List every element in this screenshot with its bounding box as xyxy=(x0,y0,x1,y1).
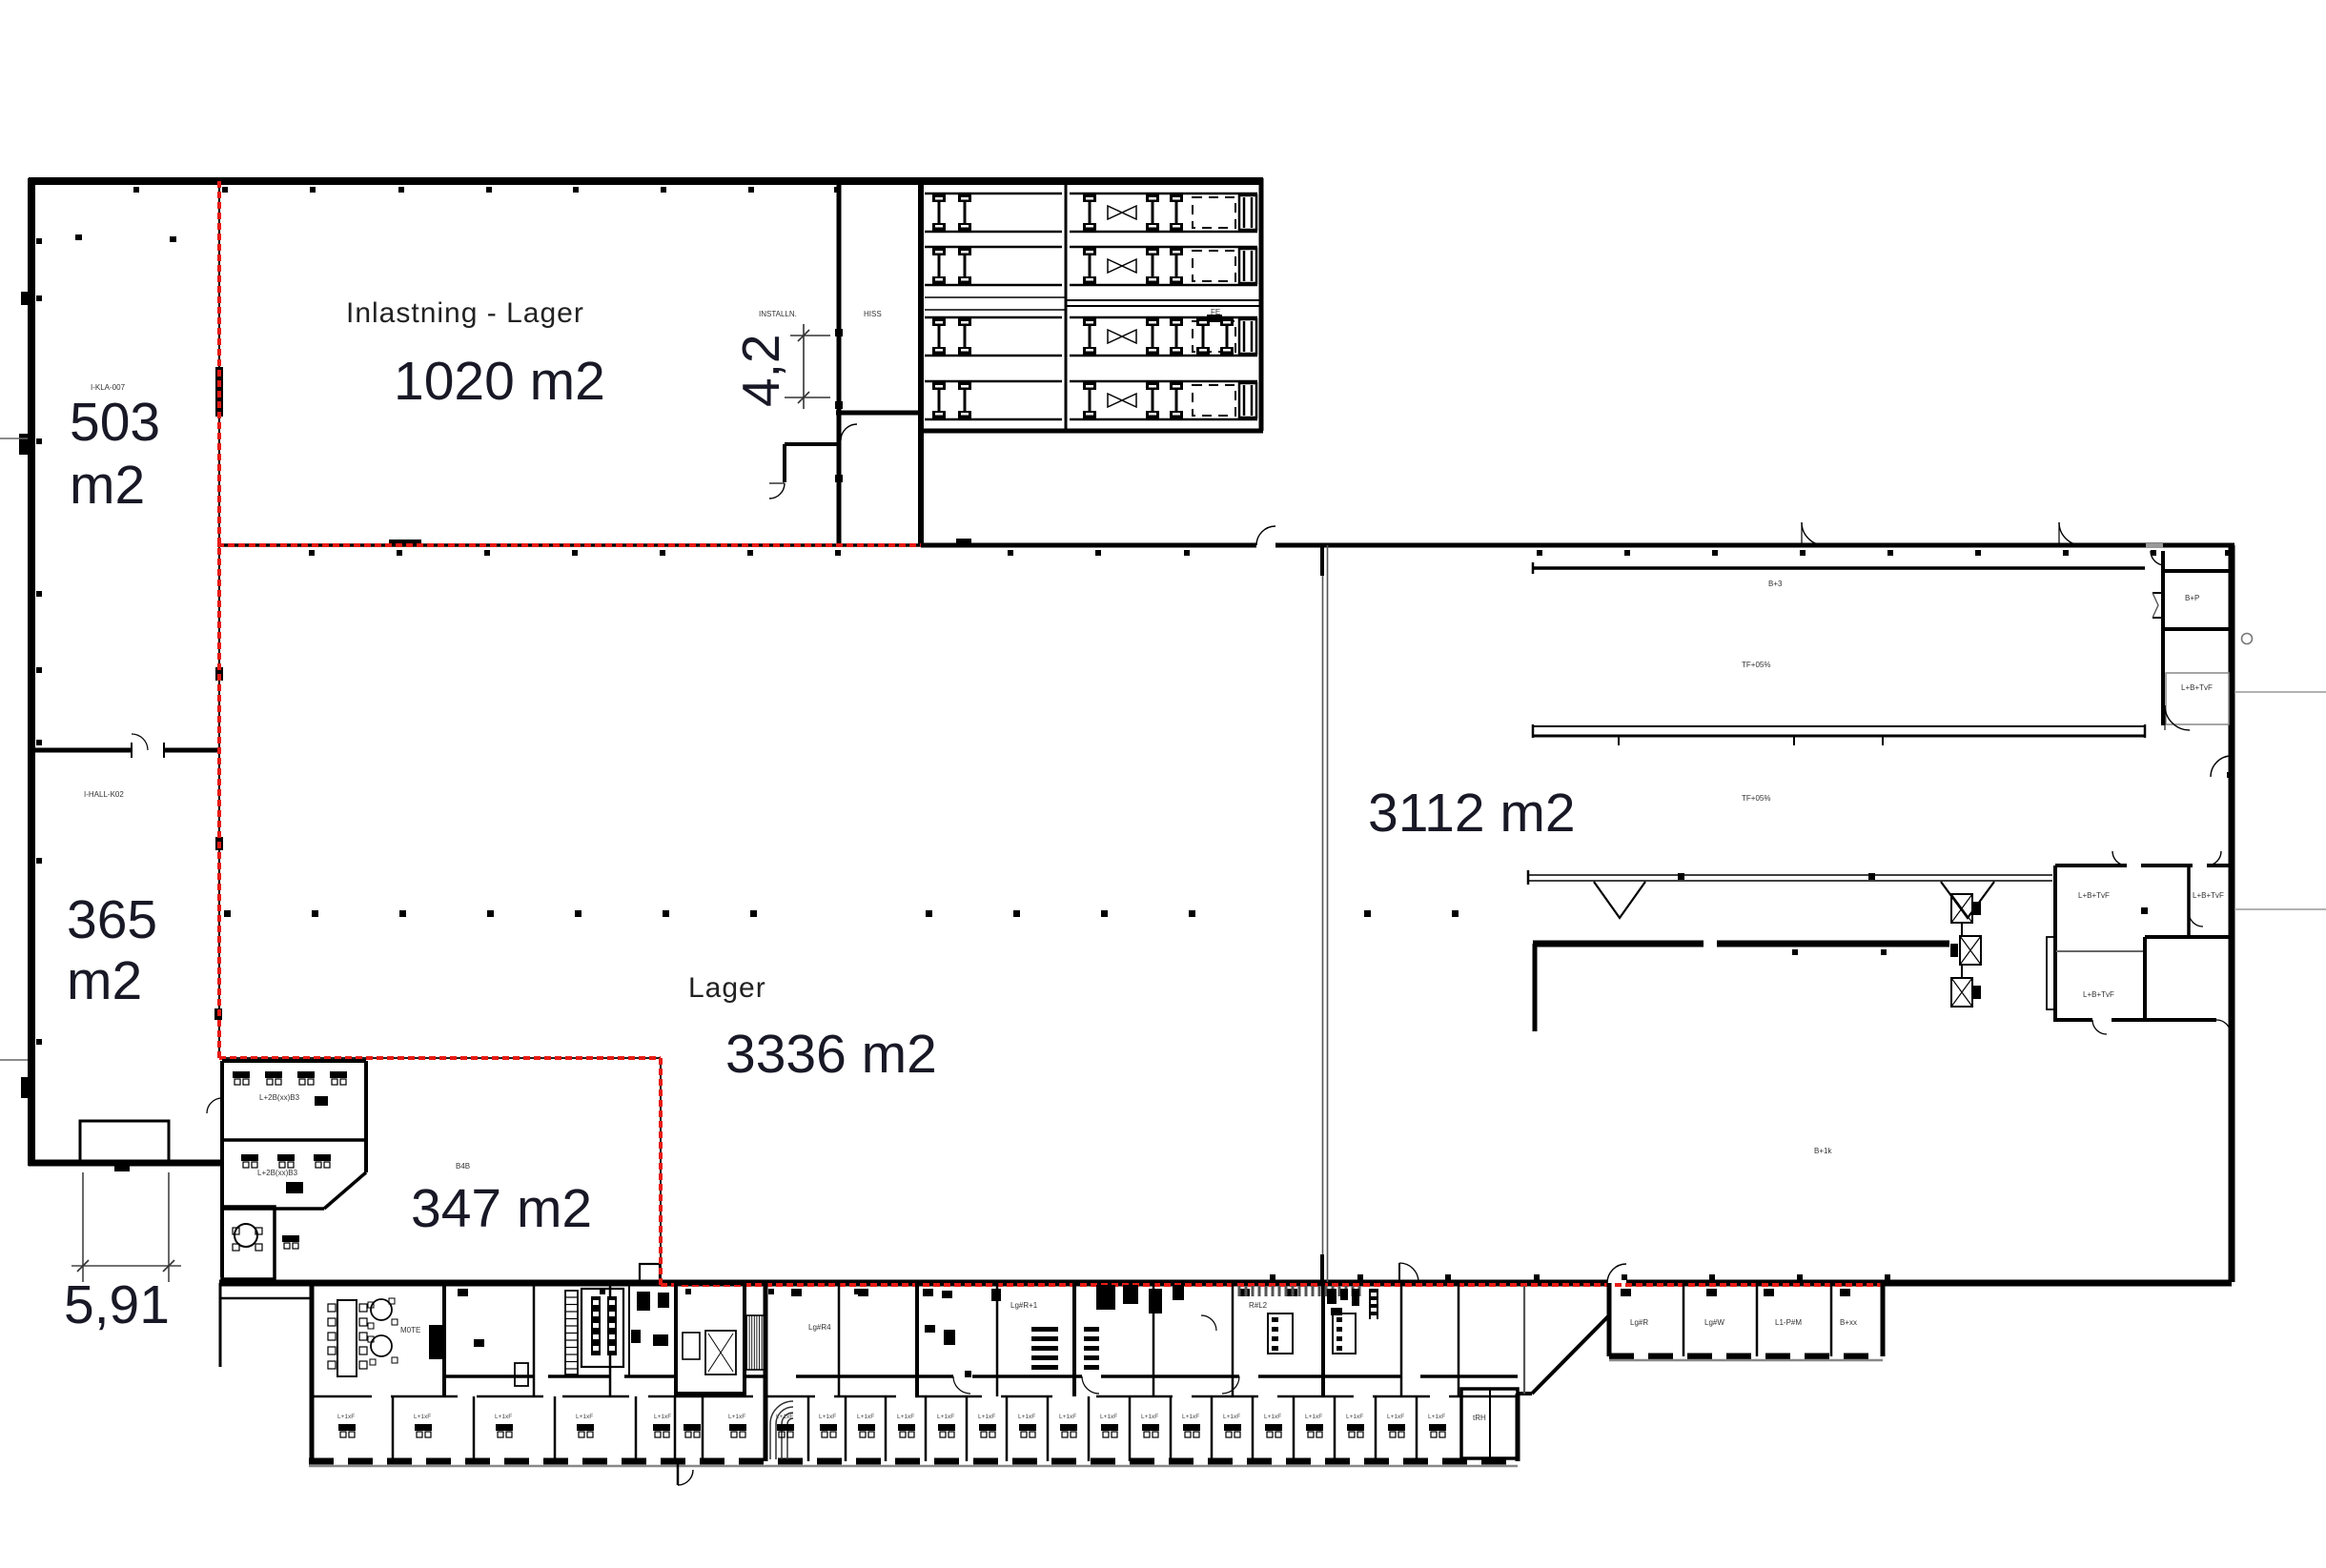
svg-text:L+1xF: L+1xF xyxy=(857,1414,874,1420)
svg-text:L+1xF: L+1xF xyxy=(776,1414,793,1420)
svg-text:4,2: 4,2 xyxy=(731,335,790,407)
svg-text:Lg#R4: Lg#R4 xyxy=(808,1323,831,1332)
svg-text:L+1xF: L+1xF xyxy=(1018,1414,1035,1420)
svg-text:503: 503 xyxy=(70,392,160,453)
svg-text:L+1xF: L+1xF xyxy=(1141,1414,1158,1420)
svg-text:B+3: B+3 xyxy=(1768,580,1783,588)
svg-text:L+1xF: L+1xF xyxy=(897,1414,914,1420)
svg-text:L+1xF: L+1xF xyxy=(1428,1414,1445,1420)
svg-text:Lg#R+1: Lg#R+1 xyxy=(1010,1301,1038,1310)
svg-text:L+1xF: L+1xF xyxy=(937,1414,954,1420)
svg-text:L+B+TvF: L+B+TvF xyxy=(2193,891,2224,900)
svg-text:L+1xF: L+1xF xyxy=(1182,1414,1199,1420)
svg-text:m2: m2 xyxy=(70,455,145,516)
svg-text:I-HALL-K02: I-HALL-K02 xyxy=(84,790,124,799)
svg-text:5,91: 5,91 xyxy=(64,1274,170,1335)
svg-text:L+1xF: L+1xF xyxy=(1100,1414,1117,1420)
svg-text:B+P: B+P xyxy=(2185,594,2199,602)
svg-text:3336 m2: 3336 m2 xyxy=(725,1024,937,1085)
svg-text:L+1xF: L+1xF xyxy=(978,1414,995,1420)
svg-text:L+1xF: L+1xF xyxy=(337,1414,355,1420)
svg-text:M0TE: M0TE xyxy=(400,1326,420,1334)
svg-text:TF+05%: TF+05% xyxy=(1742,661,1770,669)
svg-text:L+1xF: L+1xF xyxy=(1387,1414,1404,1420)
svg-text:Lg#W: Lg#W xyxy=(1704,1318,1724,1327)
svg-text:FE: FE xyxy=(1211,308,1220,316)
svg-text:B4B: B4B xyxy=(456,1162,470,1171)
svg-text:3112 m2: 3112 m2 xyxy=(1368,783,1576,844)
svg-text:R#L2: R#L2 xyxy=(1249,1301,1268,1310)
svg-text:L+2B(xx)B3: L+2B(xx)B3 xyxy=(257,1169,298,1177)
svg-text:L+1xF: L+1xF xyxy=(819,1414,836,1420)
svg-text:TF+05%: TF+05% xyxy=(1742,794,1770,803)
svg-text:Lager: Lager xyxy=(688,972,766,1004)
svg-text:HISS: HISS xyxy=(864,310,882,318)
svg-text:INSTALLN.: INSTALLN. xyxy=(759,310,797,318)
svg-text:m2: m2 xyxy=(67,950,142,1011)
svg-text:L1-P#M: L1-P#M xyxy=(1775,1318,1802,1327)
svg-text:L+1xF: L+1xF xyxy=(495,1414,512,1420)
svg-text:B+xx: B+xx xyxy=(1840,1318,1857,1327)
svg-text:L+B+TvF: L+B+TvF xyxy=(2083,990,2114,999)
svg-text:L+B+TvF: L+B+TvF xyxy=(2181,683,2213,692)
svg-text:1020 m2: 1020 m2 xyxy=(394,351,605,412)
svg-text:365: 365 xyxy=(67,889,157,950)
svg-text:L+1xF: L+1xF xyxy=(414,1414,431,1420)
svg-text:L+1xF: L+1xF xyxy=(1059,1414,1076,1420)
svg-text:L+1xF: L+1xF xyxy=(654,1414,671,1420)
svg-text:I-KLA-007: I-KLA-007 xyxy=(91,383,126,392)
svg-text:L+1xF: L+1xF xyxy=(576,1414,593,1420)
svg-text:L+2B(xx)B3: L+2B(xx)B3 xyxy=(259,1093,300,1102)
svg-text:L+B+TvF: L+B+TvF xyxy=(2078,891,2110,900)
svg-text:L+1xF: L+1xF xyxy=(1346,1414,1363,1420)
svg-text:L+1xF: L+1xF xyxy=(1305,1414,1322,1420)
svg-text:L+1xF: L+1xF xyxy=(1223,1414,1240,1420)
svg-text:tRH: tRH xyxy=(1473,1414,1486,1422)
svg-text:L+1xF: L+1xF xyxy=(1264,1414,1281,1420)
svg-text:Lg#R: Lg#R xyxy=(1630,1318,1648,1327)
svg-text:Inlastning - Lager: Inlastning - Lager xyxy=(346,297,584,329)
svg-text:B+1k: B+1k xyxy=(1814,1147,1832,1155)
svg-text:347 m2: 347 m2 xyxy=(411,1178,592,1239)
svg-text:L+1xF: L+1xF xyxy=(728,1414,745,1420)
